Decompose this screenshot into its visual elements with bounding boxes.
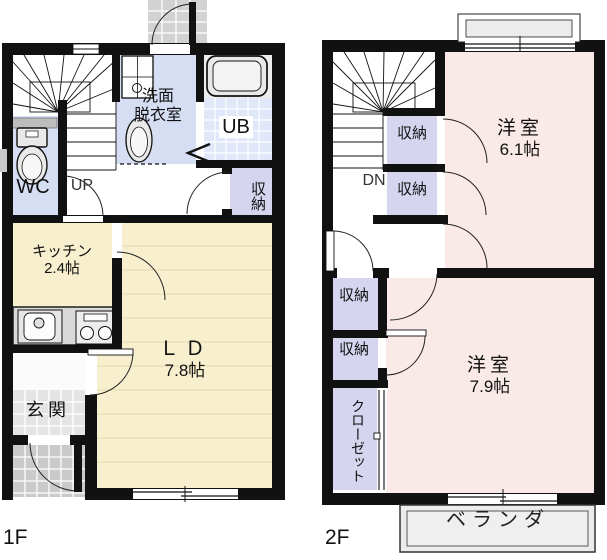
- window-stairs-1f: [73, 44, 99, 54]
- closet-label: クローゼット: [340, 392, 366, 490]
- floor-1-label: 1F: [3, 526, 63, 550]
- door-leaf-top-porch: [189, 2, 196, 45]
- side-window-1f: [0, 149, 7, 172]
- door-arc-storage-1f: [187, 172, 229, 214]
- ld-label: ＬＤ 7.8帖: [135, 338, 235, 382]
- entrance-label: 玄関: [15, 400, 81, 421]
- stairs-up-label: UP: [60, 177, 104, 196]
- kitchen-name: キッチン: [32, 243, 92, 260]
- western-room-1-label: 洋室 6.1帖: [460, 118, 580, 161]
- wc-label: WC: [10, 176, 56, 199]
- door-leaf-entrance: [74, 438, 82, 492]
- floor-plan: 洗面 脱衣室 UB WC UP 収納 キッチン 2.4帖 ＬＤ 7.8帖 玄関 …: [0, 0, 607, 560]
- kitchen-size: 2.4帖: [44, 260, 80, 277]
- western-room-2-name: 洋室: [467, 355, 513, 376]
- storage-2f-1-label: 収納: [386, 125, 438, 142]
- western-room-1-name: 洋室: [497, 118, 543, 139]
- western-room-2-label: 洋室 7.9帖: [430, 355, 550, 398]
- storage-1f-label: 収納: [238, 171, 266, 221]
- ld-size: 7.8帖: [165, 361, 206, 380]
- western-room-1-size: 6.1帖: [500, 140, 541, 159]
- kitchen-counter-fixture: [13, 307, 117, 345]
- floor-plan-drawing: [0, 0, 607, 560]
- unit-bath-label: UB: [204, 116, 268, 139]
- washroom-label-line2: 脱衣室: [134, 107, 182, 124]
- veranda-label: ベランダ: [428, 509, 568, 532]
- storage-2f-3-label: 収納: [328, 287, 380, 304]
- floor-2-label: 2F: [325, 526, 385, 550]
- washroom-label-line1: 洗面: [142, 88, 174, 105]
- bathtub-fixture: [207, 56, 267, 96]
- storage-2f-2-label: 収納: [386, 181, 438, 198]
- ld-floor-ext: [97, 352, 122, 488]
- washroom-label: 洗面 脱衣室: [116, 88, 200, 125]
- door-leaf-storage-2f-4: [386, 330, 426, 336]
- door-leaf-entrance-hall: [88, 349, 133, 355]
- storage-2f-4-label: 収納: [328, 341, 380, 358]
- ld-name: ＬＤ: [159, 338, 211, 360]
- western-room-2-size: 7.9帖: [470, 377, 511, 396]
- door-arc-storage-2f-3: [333, 231, 373, 271]
- window-2f-north: [458, 14, 580, 52]
- entrance-hall-floor: [13, 352, 85, 390]
- kitchen-label: キッチン 2.4帖: [13, 243, 111, 278]
- door-leaf-storage-2f-3: [326, 231, 334, 271]
